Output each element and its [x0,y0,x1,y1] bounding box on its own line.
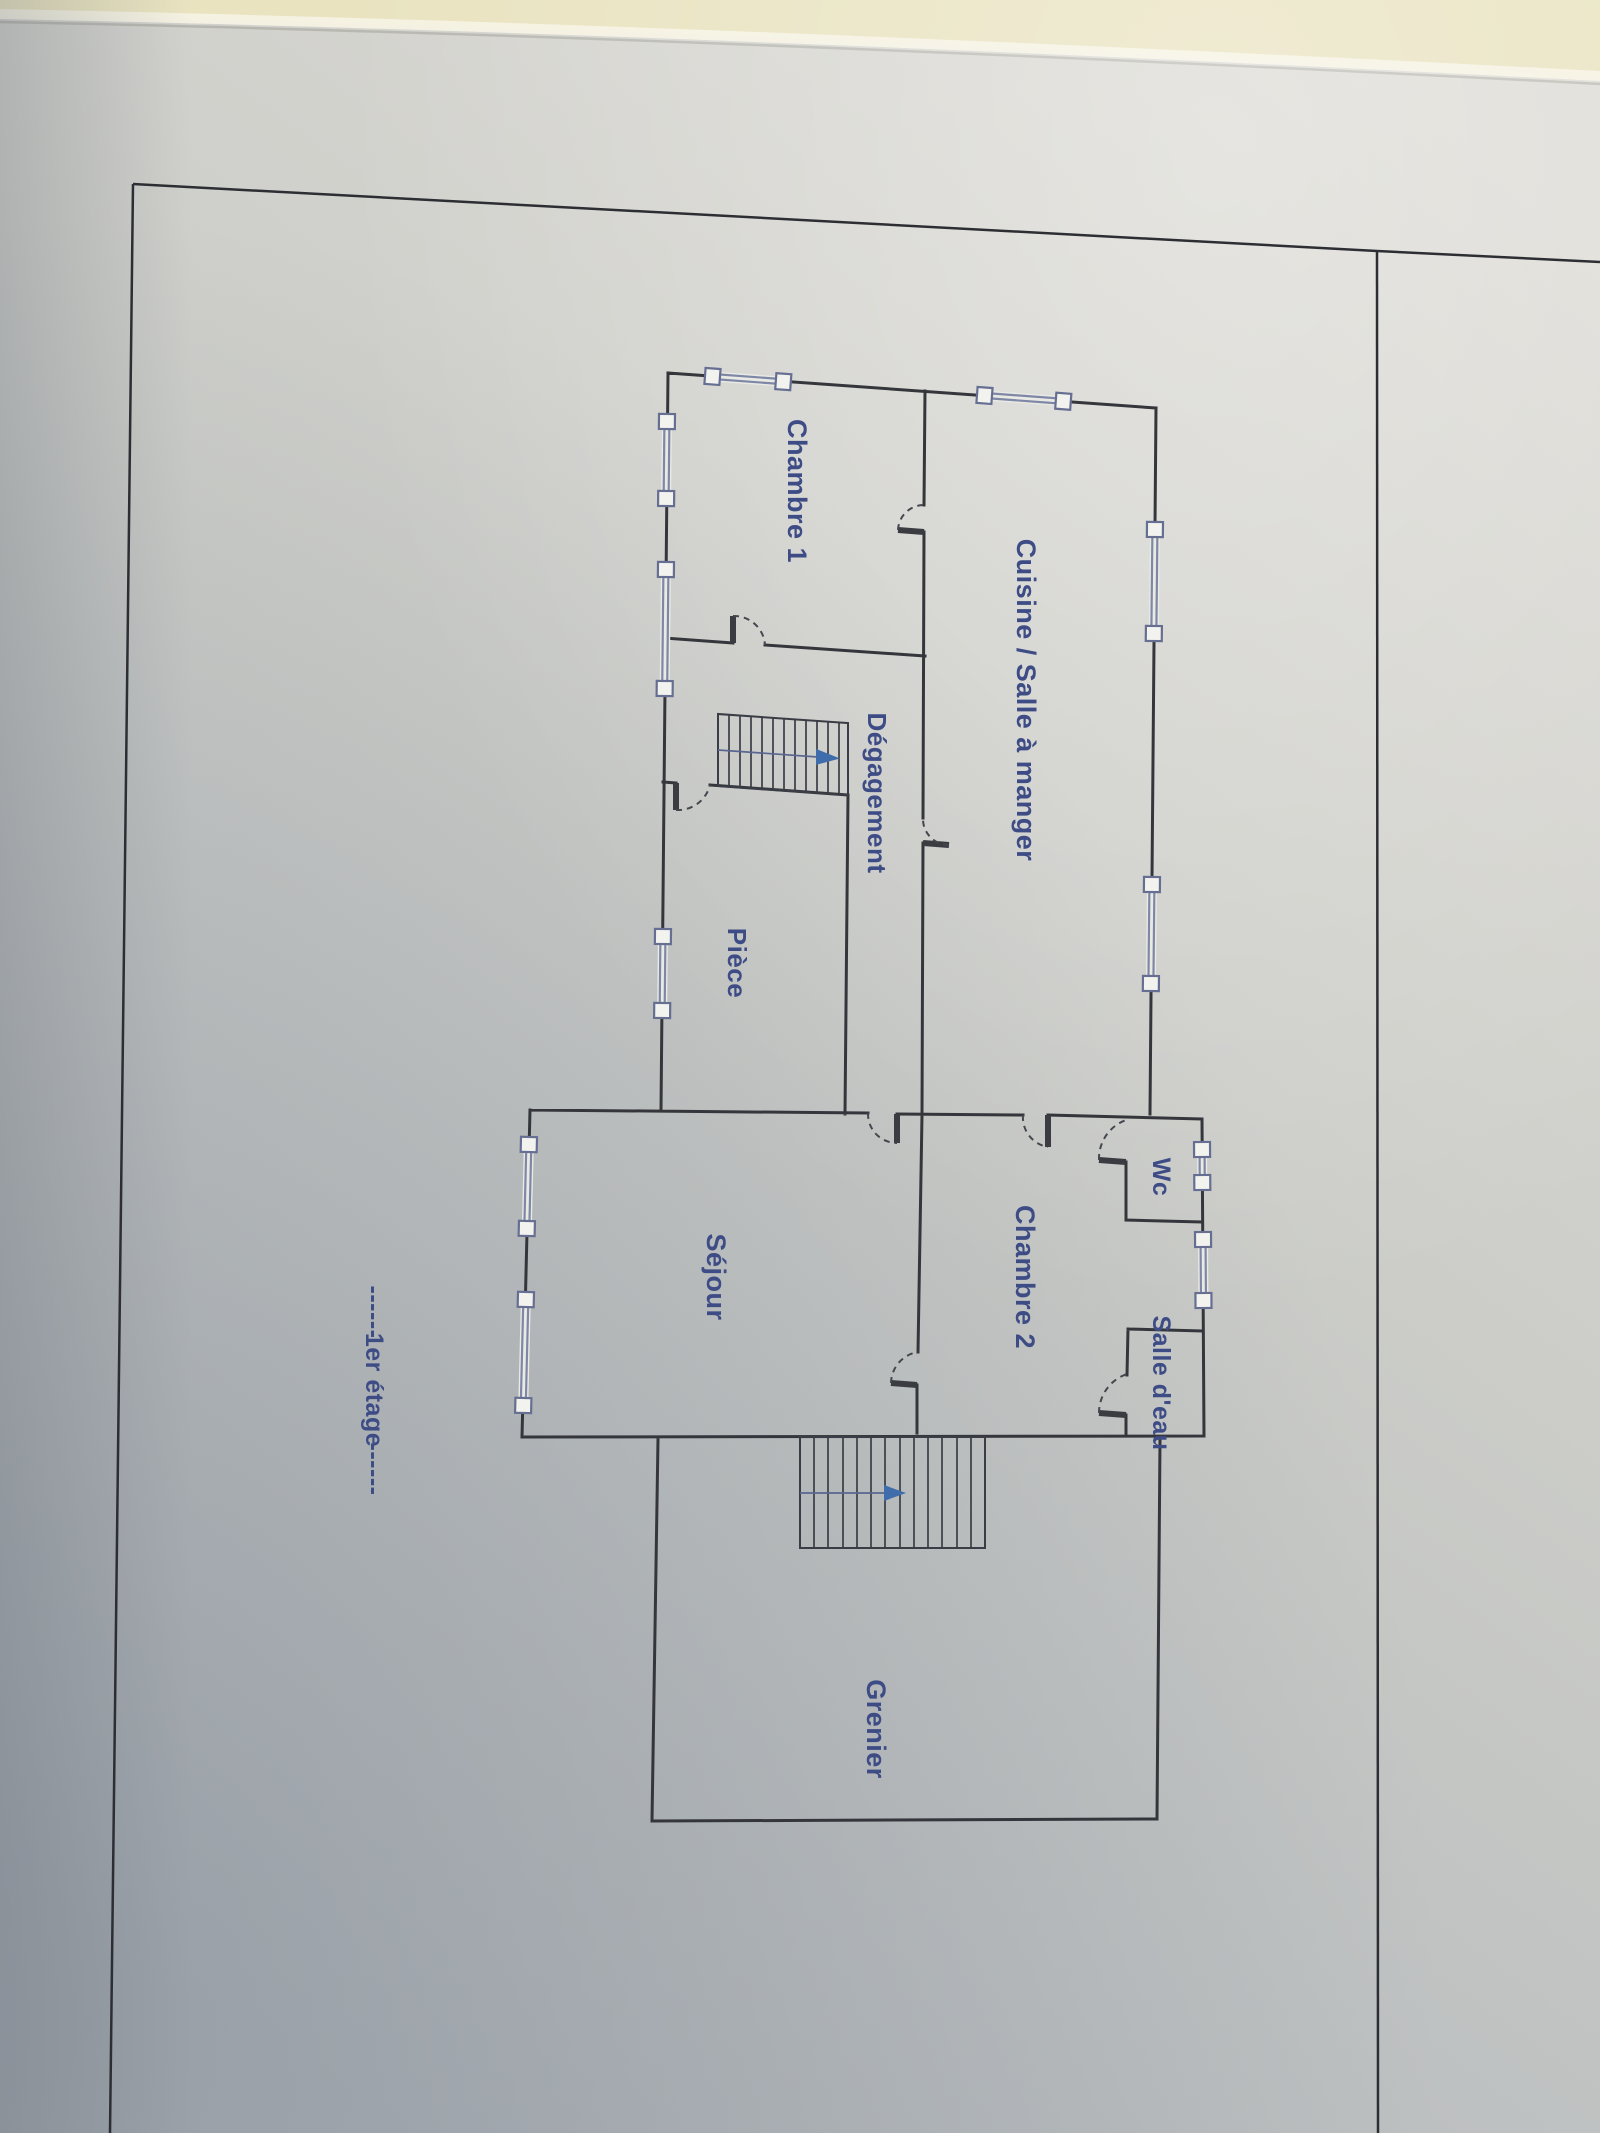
paper-left-vignette [0,0,1600,2133]
room-label-chambre-2: Chambre 2 [1010,1205,1040,1349]
room-label-grenier: Grenier [861,1679,891,1779]
room-label-chambre-1: Chambre 1 [782,419,812,563]
room-label-sejour: Séjour [701,1233,731,1320]
room-label-salle-d-eau: Salle d'eau [1147,1315,1175,1450]
room-label-degagement: Dégagement [862,712,892,873]
photo-of-floor-plan: Chambre 1 Cuisine / Salle à manger Dégag… [0,0,1600,2133]
room-label-wc: Wc [1147,1158,1175,1197]
caption-dashes-after: ------ [360,1443,388,1496]
frame-right-border [1377,251,1378,2133]
room-label-cuisine-salle-a-manger: Cuisine / Salle à manger [1011,539,1041,862]
caption-floor-label: 1er étage [360,1333,388,1447]
floor-caption: ------ 1er étage ------ [360,1286,388,1496]
room-label-piece: Pièce [722,928,752,998]
caption-dashes-before: ------ [360,1286,388,1339]
